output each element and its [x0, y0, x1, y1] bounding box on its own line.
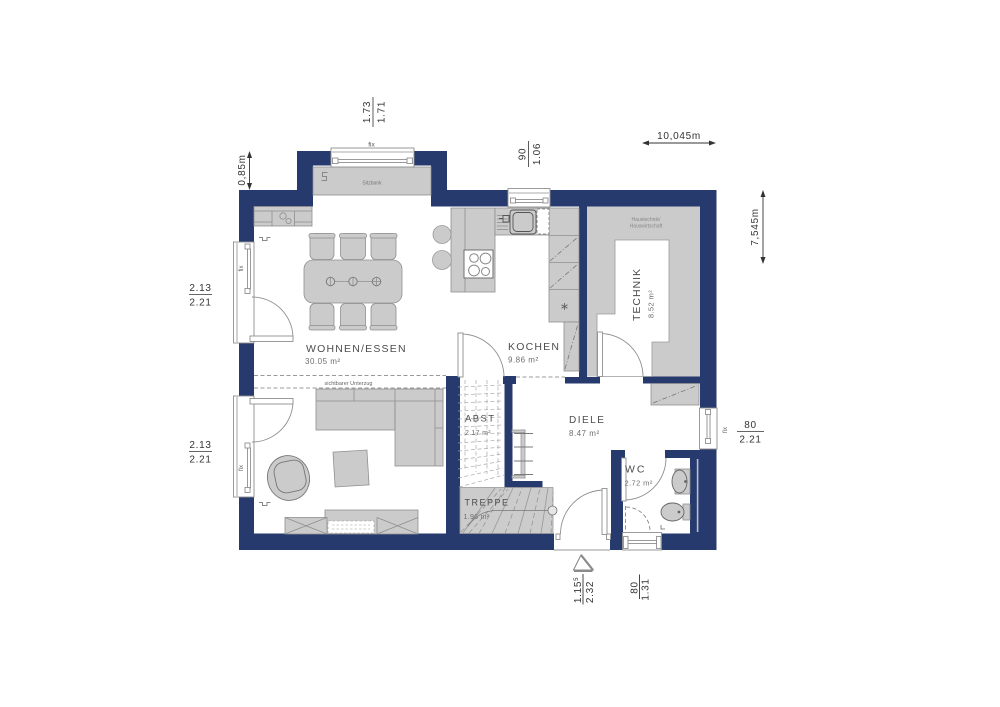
svg-text:fix: fix: [239, 266, 245, 272]
svg-text:8.47 m²: 8.47 m²: [569, 429, 600, 438]
svg-text:2.72 m²: 2.72 m²: [625, 479, 653, 488]
svg-text:90: 90: [518, 148, 529, 161]
svg-text:7,545m: 7,545m: [750, 208, 761, 246]
svg-text:TREPPE: TREPPE: [465, 498, 510, 508]
svg-text:0,85m: 0,85m: [237, 154, 248, 185]
svg-text:fix: fix: [723, 427, 729, 433]
svg-text:2.17 m²: 2.17 m²: [465, 430, 491, 437]
svg-text:2.21: 2.21: [189, 455, 211, 466]
svg-text:Haustechnik/: Haustechnik/: [632, 217, 662, 223]
svg-text:2.13: 2.13: [189, 440, 211, 451]
svg-text:Hauswirtschaft: Hauswirtschaft: [630, 224, 663, 230]
svg-text:1.71: 1.71: [377, 101, 388, 123]
svg-text:WC: WC: [625, 464, 647, 476]
svg-text:TECHNIK: TECHNIK: [631, 268, 643, 321]
svg-text:sichtbarer Unterzug: sichtbarer Unterzug: [325, 381, 373, 387]
svg-text:KOCHEN: KOCHEN: [508, 341, 560, 353]
svg-text:DIELE: DIELE: [569, 415, 605, 426]
svg-text:2.32: 2.32: [585, 581, 596, 603]
svg-text:WOHNEN/ESSEN: WOHNEN/ESSEN: [306, 343, 407, 355]
svg-text:fix: fix: [368, 142, 375, 149]
svg-text:8.52 m²: 8.52 m²: [647, 290, 656, 318]
svg-text:1.31: 1.31: [641, 578, 652, 600]
svg-text:2.21: 2.21: [739, 435, 761, 446]
svg-text:2.21: 2.21: [189, 298, 211, 309]
svg-text:9.86 m²: 9.86 m²: [508, 356, 539, 365]
svg-text:30.05 m²: 30.05 m²: [305, 357, 341, 366]
svg-text:1.06: 1.06: [532, 143, 543, 165]
svg-text:10,045m: 10,045m: [657, 131, 701, 142]
svg-text:ABST: ABST: [465, 414, 495, 425]
svg-text:fix: fix: [239, 465, 245, 471]
svg-text:2.13: 2.13: [189, 283, 211, 294]
svg-text:1.96 m²: 1.96 m²: [464, 514, 490, 521]
svg-text:Sitzbank: Sitzbank: [362, 181, 382, 187]
svg-text:1.73: 1.73: [362, 101, 373, 123]
svg-text:80: 80: [744, 420, 757, 431]
svg-text:80: 80: [630, 581, 641, 594]
